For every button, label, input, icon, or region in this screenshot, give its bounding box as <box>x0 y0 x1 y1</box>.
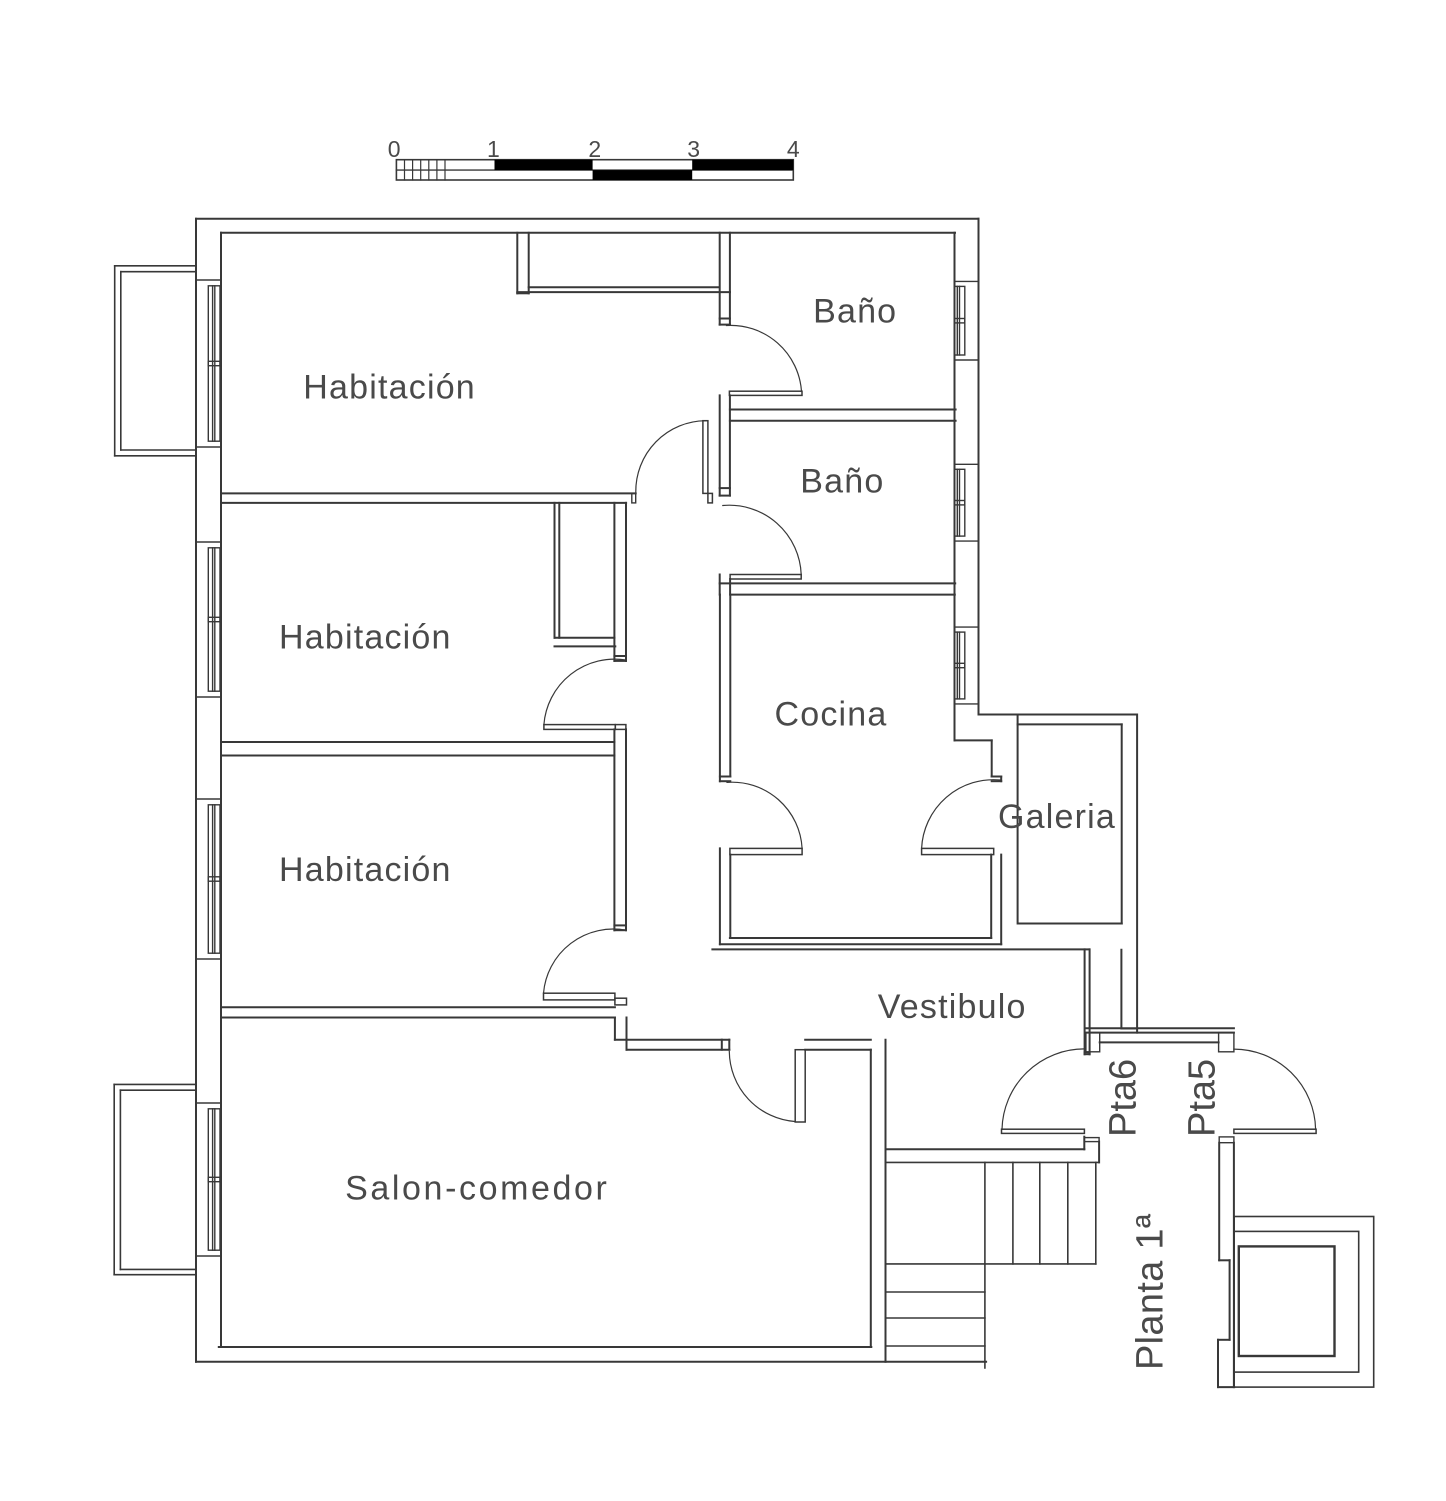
svg-text:Salon-comedor: Salon-comedor <box>345 1169 609 1207</box>
svg-text:3: 3 <box>687 136 700 162</box>
svg-text:0: 0 <box>388 136 401 162</box>
svg-text:Galeria: Galeria <box>998 798 1116 836</box>
svg-text:Cocina: Cocina <box>774 696 887 734</box>
svg-text:2: 2 <box>588 136 601 162</box>
svg-text:Habitación: Habitación <box>279 619 452 657</box>
svg-text:Planta 1ª: Planta 1ª <box>1130 1213 1172 1370</box>
svg-text:Vestibulo: Vestibulo <box>878 988 1027 1026</box>
svg-text:Pta6: Pta6 <box>1103 1059 1145 1137</box>
svg-text:Habitación: Habitación <box>279 851 452 889</box>
svg-text:1: 1 <box>487 136 500 162</box>
svg-text:Pta5: Pta5 <box>1182 1059 1224 1137</box>
svg-text:4: 4 <box>787 136 800 162</box>
svg-text:Baño: Baño <box>813 293 897 331</box>
svg-text:Baño: Baño <box>800 463 884 501</box>
svg-text:Habitación: Habitación <box>303 369 476 407</box>
